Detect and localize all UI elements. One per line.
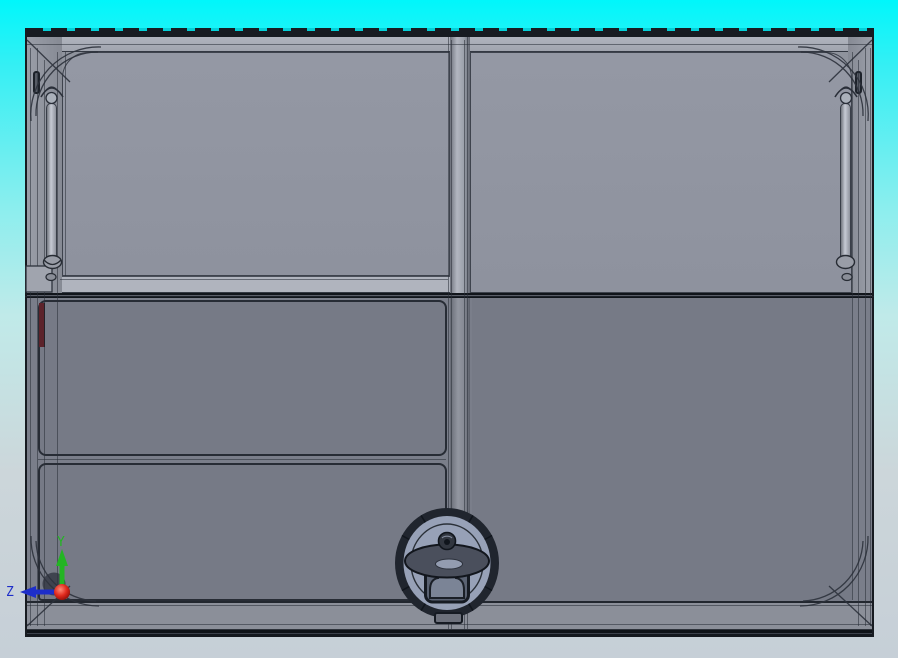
right-hinge-slot[interactable] <box>855 71 862 94</box>
right-gas-spring[interactable] <box>840 103 851 263</box>
center-mullion-lower[interactable] <box>450 298 470 629</box>
top-hinge-edge <box>27 28 872 37</box>
upper-left-window-flap[interactable] <box>62 52 450 276</box>
red-hinge-strip[interactable] <box>39 303 45 347</box>
lower-left-panel-upper[interactable] <box>38 300 447 456</box>
lower-right-door[interactable] <box>472 298 852 601</box>
upper-right-window[interactable] <box>470 52 852 293</box>
flap-bottom-rail[interactable] <box>62 276 450 293</box>
left-hinge-slot[interactable] <box>33 71 40 94</box>
lower-left-panel-lower[interactable] <box>38 463 447 601</box>
left-gas-spring[interactable] <box>46 103 57 263</box>
cad-viewport: Z Y <box>0 0 898 658</box>
z-axis-label: Z <box>6 585 14 600</box>
enclosure-model[interactable] <box>25 28 874 637</box>
bottom-frame-rail[interactable] <box>27 601 872 629</box>
bottom-dark-edge <box>27 629 872 637</box>
